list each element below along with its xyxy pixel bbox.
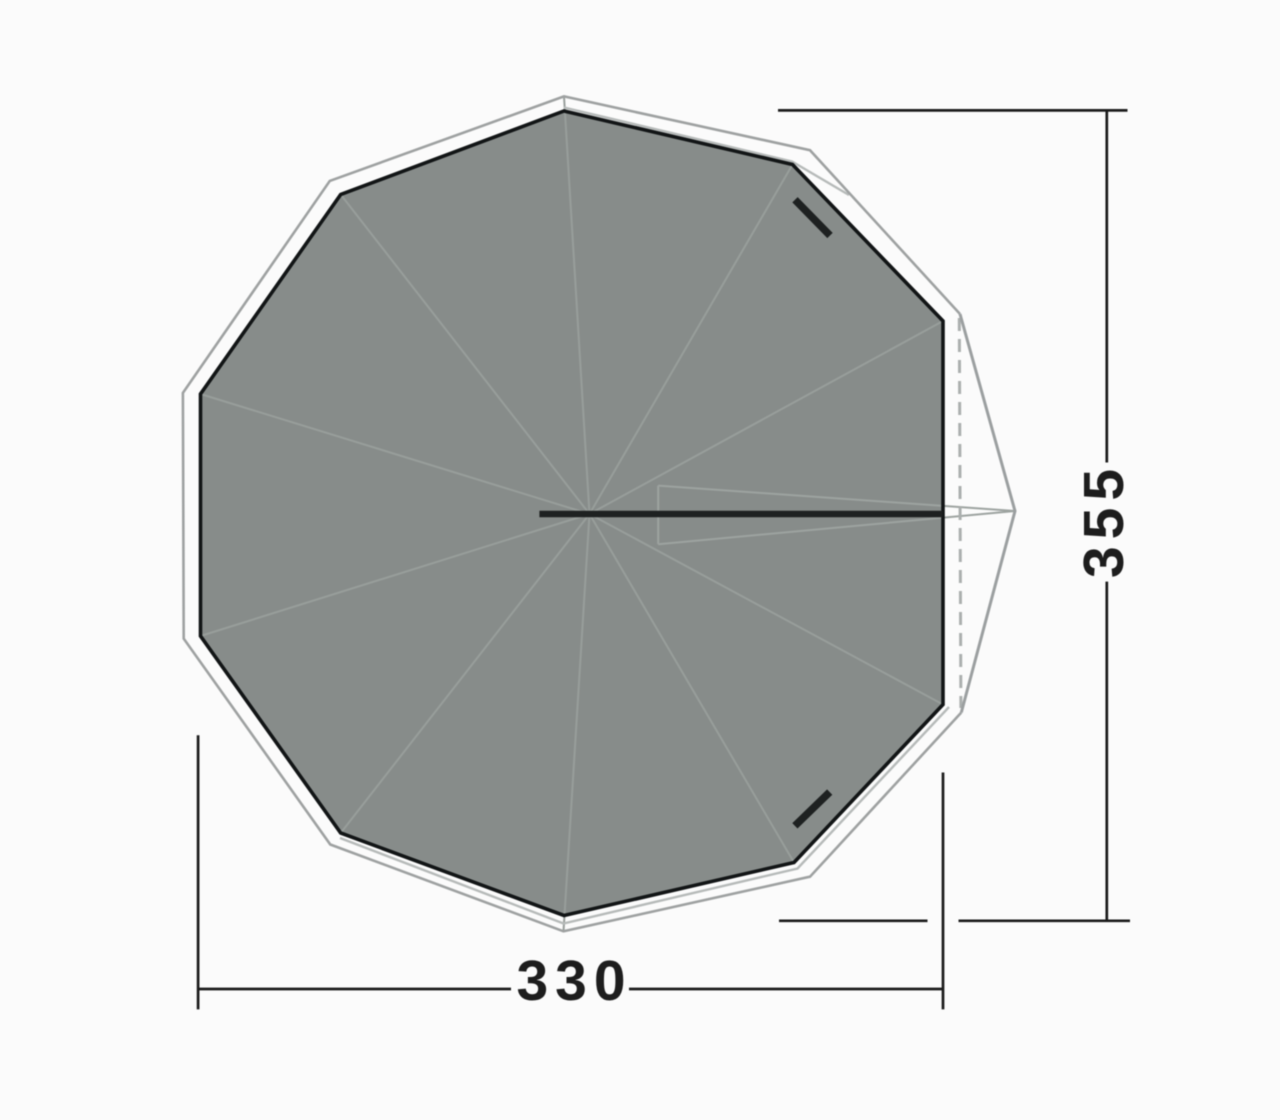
- svg-text:355: 355: [1072, 462, 1136, 578]
- svg-text:330: 330: [516, 949, 632, 1013]
